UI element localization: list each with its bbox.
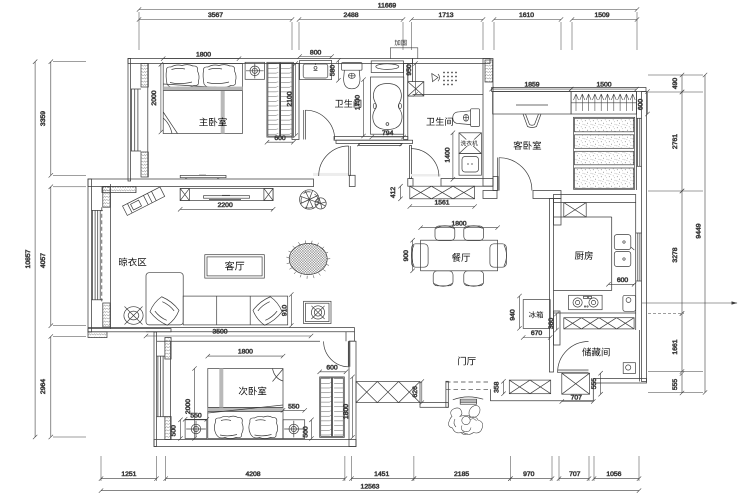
svg-text:950: 950 bbox=[406, 64, 413, 76]
svg-text:900: 900 bbox=[403, 250, 410, 262]
svg-text:1610: 1610 bbox=[519, 12, 534, 19]
svg-text:2100: 2100 bbox=[286, 91, 293, 106]
svg-text:1713: 1713 bbox=[438, 12, 453, 19]
svg-text:1661: 1661 bbox=[672, 339, 679, 354]
svg-text:626: 626 bbox=[412, 386, 419, 398]
svg-text:12563: 12563 bbox=[361, 484, 380, 491]
svg-text:1561: 1561 bbox=[434, 199, 449, 206]
svg-text:707: 707 bbox=[569, 471, 581, 478]
svg-text:358: 358 bbox=[494, 381, 501, 393]
svg-text:2200: 2200 bbox=[218, 202, 233, 209]
svg-text:1400: 1400 bbox=[445, 147, 452, 162]
svg-text:794: 794 bbox=[382, 130, 394, 137]
svg-text:1056: 1056 bbox=[606, 471, 621, 478]
svg-text:11669: 11669 bbox=[378, 3, 397, 10]
svg-text:1800: 1800 bbox=[238, 349, 253, 356]
svg-text:4057: 4057 bbox=[40, 253, 47, 268]
svg-text:3500: 3500 bbox=[212, 328, 227, 335]
svg-text:3359: 3359 bbox=[40, 111, 47, 126]
svg-text:2000: 2000 bbox=[151, 90, 158, 105]
svg-text:10857: 10857 bbox=[25, 249, 32, 268]
svg-text:670: 670 bbox=[531, 330, 543, 337]
svg-text:600: 600 bbox=[274, 135, 286, 142]
svg-text:2964: 2964 bbox=[40, 379, 47, 394]
svg-text:9449: 9449 bbox=[696, 223, 703, 238]
svg-text:360: 360 bbox=[548, 318, 555, 330]
svg-text:1800: 1800 bbox=[451, 220, 466, 227]
svg-text:1500: 1500 bbox=[596, 82, 611, 89]
svg-text:707: 707 bbox=[571, 394, 583, 401]
svg-text:600: 600 bbox=[637, 99, 644, 111]
svg-text:555: 555 bbox=[591, 378, 598, 390]
svg-text:1451: 1451 bbox=[374, 471, 389, 478]
svg-text:2488: 2488 bbox=[343, 12, 358, 19]
svg-text:500: 500 bbox=[303, 426, 310, 438]
svg-text:800: 800 bbox=[310, 49, 322, 56]
svg-text:940: 940 bbox=[509, 309, 516, 321]
svg-text:1800: 1800 bbox=[196, 51, 211, 58]
svg-text:555: 555 bbox=[672, 379, 679, 391]
svg-text:1859: 1859 bbox=[524, 82, 539, 89]
svg-text:2761: 2761 bbox=[672, 134, 679, 149]
svg-text:1509: 1509 bbox=[594, 12, 609, 19]
svg-text:490: 490 bbox=[672, 78, 679, 90]
svg-text:910: 910 bbox=[282, 305, 289, 317]
svg-text:580: 580 bbox=[329, 65, 336, 77]
svg-text:4208: 4208 bbox=[245, 471, 260, 478]
svg-text:500: 500 bbox=[170, 425, 177, 437]
svg-text:1800: 1800 bbox=[343, 404, 350, 419]
svg-text:2185: 2185 bbox=[454, 471, 469, 478]
svg-text:600: 600 bbox=[326, 364, 338, 371]
svg-text:970: 970 bbox=[523, 471, 535, 478]
svg-text:550: 550 bbox=[190, 413, 202, 420]
svg-text:600: 600 bbox=[617, 277, 629, 284]
svg-text:3278: 3278 bbox=[672, 247, 679, 262]
svg-text:1251: 1251 bbox=[121, 471, 136, 478]
svg-text:3567: 3567 bbox=[208, 12, 223, 19]
svg-text:550: 550 bbox=[288, 403, 300, 410]
svg-text:412: 412 bbox=[390, 187, 397, 199]
